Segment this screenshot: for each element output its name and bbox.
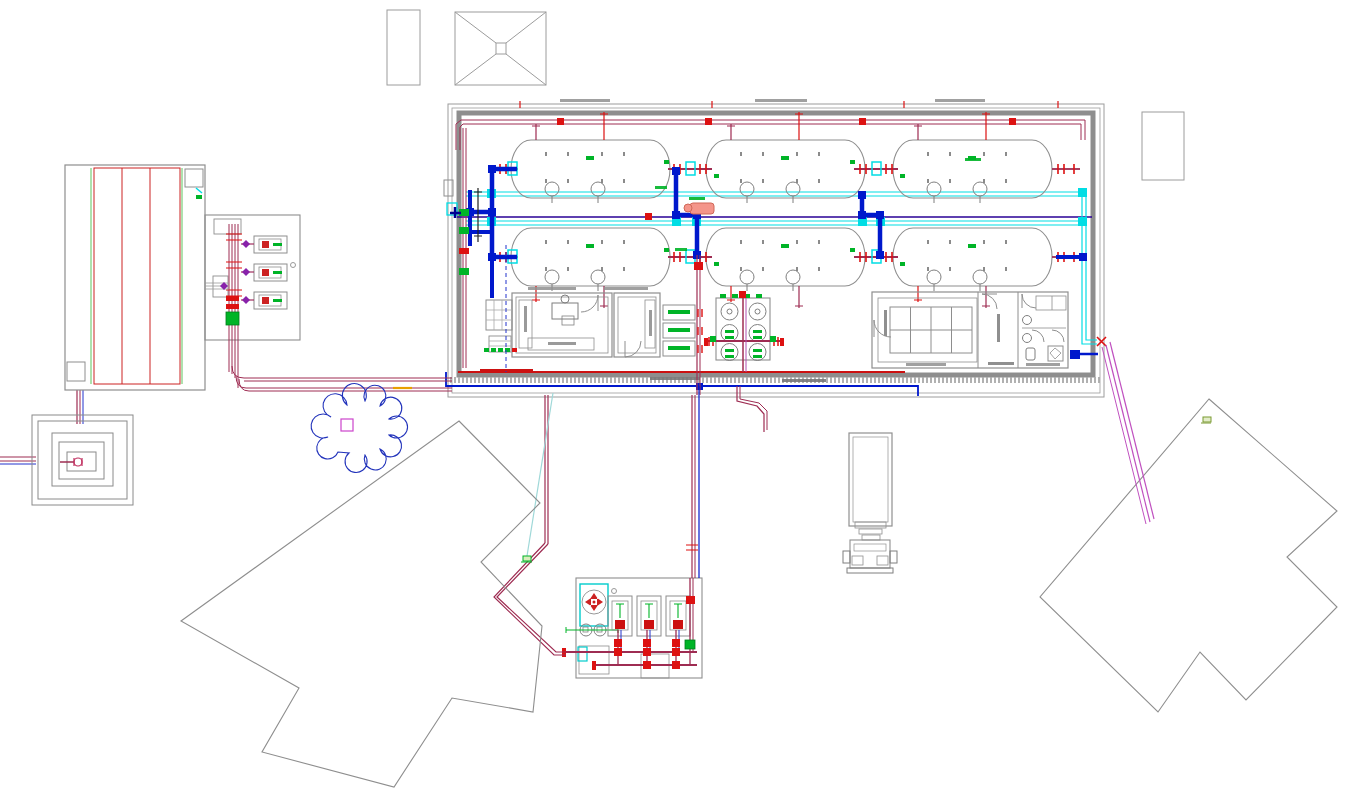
top-pipe-valve [859, 118, 866, 125]
tank-stub-red-down [914, 286, 922, 302]
blue-joint [876, 211, 884, 219]
shower-drain [1050, 348, 1061, 359]
survey-marker [523, 556, 531, 561]
skid-unit-green-label [273, 271, 282, 274]
tanker-trailer [849, 433, 892, 526]
blue-joint [858, 191, 866, 199]
micro-label [755, 99, 807, 102]
southwest-building [181, 421, 542, 787]
micro-label [560, 99, 610, 102]
micro-label [528, 287, 576, 290]
east-feeder-pipe [1102, 347, 1146, 524]
office-side-table [562, 316, 574, 325]
top-pipe-valve [705, 118, 712, 125]
skid-unit-red [262, 269, 269, 276]
micro-label [782, 379, 826, 382]
meter-room-outer [614, 293, 660, 357]
storage-tank [706, 140, 865, 198]
tank-stub-red-up [982, 112, 990, 140]
skid-green-bar [725, 330, 734, 333]
dispenser-green-axis [674, 604, 682, 618]
tank-ticks [928, 152, 1006, 183]
tank-head-green [850, 248, 855, 252]
tank-stub-crimson-down [795, 286, 803, 308]
dispenser-valve [643, 639, 651, 647]
east-exit-blue-joint [1070, 350, 1080, 359]
tanker-seat [852, 556, 863, 565]
shed-red-valve [686, 596, 695, 604]
odorizer-green-label [668, 310, 690, 314]
tankfarm-corner-room [185, 169, 203, 187]
skid-green-bar [725, 336, 734, 339]
manifold-valve [643, 648, 651, 656]
tank-green-label [586, 156, 594, 160]
tank-stub-red-up [600, 112, 608, 140]
tanker-bumper [847, 568, 893, 573]
manifold-cap [592, 661, 596, 670]
dispenser-red-block [615, 620, 625, 629]
fitting-green-dot [484, 348, 489, 352]
canopy-hip-lines [455, 12, 546, 85]
east-feeder-pipe [1106, 345, 1150, 522]
tanker-cab-window [854, 544, 886, 551]
tank-stub-crimson-up [532, 124, 540, 140]
transfer-pump [690, 203, 714, 214]
blue-joint [488, 253, 496, 261]
tank-stub-crimson-up [727, 124, 735, 140]
bath-store [1036, 296, 1066, 310]
tanker-trailer-inner [853, 437, 888, 522]
tank-ticks [928, 240, 1006, 271]
micro-label-green [965, 158, 981, 161]
cyan-tick [196, 188, 202, 193]
skid-green-bar [753, 349, 762, 352]
micro-label [906, 363, 946, 366]
northeast-shed [1142, 112, 1184, 180]
tank-ticks [741, 240, 819, 271]
skid-green-bar [753, 355, 762, 358]
tank-head-green [850, 160, 855, 164]
skid-unit-red [262, 241, 269, 248]
equipment-cabinet [486, 300, 512, 330]
manifold-skid-box [214, 219, 241, 234]
tank-ticks [546, 240, 624, 271]
east-feeder-pipe [1110, 342, 1154, 519]
green-valve [459, 227, 469, 234]
skid-cap [780, 338, 784, 346]
tank-head-green [900, 262, 905, 266]
micro-label [935, 99, 985, 102]
tankfarm-bays [94, 168, 180, 384]
generator-grid-lines [890, 307, 972, 353]
generator-door [874, 320, 891, 337]
micro-label [1026, 363, 1060, 366]
cyan-fitting [1078, 188, 1087, 197]
skid-cap [704, 338, 708, 346]
shed-green-valve [685, 640, 695, 649]
tanker-seat [877, 556, 888, 565]
unit-valve [242, 296, 250, 304]
red-valve [645, 213, 652, 220]
skid-red-top [739, 291, 746, 298]
dispenser-valve [672, 639, 680, 647]
blue-joint [858, 211, 866, 219]
survey-marker [1203, 417, 1211, 422]
tank-green-label [781, 244, 789, 248]
cyan-fitting [1078, 217, 1087, 226]
skid-unit-green-label [273, 299, 282, 302]
tank-stub-crimson-up [914, 124, 922, 140]
bath-sink [1023, 334, 1032, 343]
tankfarm-building [65, 165, 205, 390]
tank-green-label [586, 244, 594, 248]
storage-tank [893, 228, 1052, 286]
canopy-apex [496, 43, 506, 54]
micro-label-v [524, 306, 527, 332]
equipment-cabinet2-lines [489, 341, 511, 346]
micro-label-green [655, 186, 667, 189]
manifold-valve [672, 661, 680, 669]
tanker-chassis [859, 529, 882, 534]
cad-drawing-viewport[interactable] [0, 0, 1356, 811]
micro-label [650, 377, 700, 380]
stall-door [1032, 330, 1044, 342]
green-valve [459, 268, 469, 275]
skid-green-dot [732, 294, 738, 298]
skid-green-dot [756, 294, 762, 298]
tanker-chassis [855, 522, 886, 528]
top-pipe-valve [557, 118, 564, 125]
manifold-red-tees [226, 262, 242, 268]
tankfarm-corner-room [67, 362, 85, 381]
dispenser-green-axis [645, 604, 653, 618]
meter-room-door [625, 341, 641, 357]
compressor-fan-hub [593, 601, 596, 604]
micro-label-green [689, 197, 705, 200]
tank-head-green [900, 174, 905, 178]
skid-dot [291, 263, 296, 268]
blue-joint [876, 251, 884, 259]
manifold-valve [643, 661, 651, 669]
stall-door [1052, 330, 1064, 342]
micro-label-v [997, 314, 1000, 342]
shed-dot [612, 589, 617, 594]
equipment-cabinet-grid [486, 300, 512, 330]
tanker-wheel [843, 551, 850, 563]
tank-head-green [664, 160, 669, 164]
red-valve [459, 248, 469, 254]
skid-unit-green-label [273, 243, 282, 246]
dispenser-red-block [673, 620, 683, 629]
bath-sink [1023, 316, 1032, 325]
control-room-door [982, 294, 997, 309]
blue-joint [672, 167, 680, 175]
fitting-green-dot [498, 348, 503, 352]
storage-tank [511, 228, 670, 286]
dispenser-red-block [644, 620, 654, 629]
pale-cyan-line [527, 393, 553, 556]
skid-green-bar [753, 336, 762, 339]
tank-stub-crimson-down [982, 286, 990, 308]
skid-green-bar [753, 330, 762, 333]
tank-ticks [741, 152, 819, 183]
blue-joint [672, 211, 680, 219]
storage-tank [511, 140, 670, 198]
north-shed [387, 10, 420, 85]
skid-unit-red [262, 297, 269, 304]
tank-head-green [714, 262, 719, 266]
pit-valve-wheel [74, 458, 82, 466]
tank-stub-red-up [795, 112, 803, 140]
skid-green-side [770, 336, 776, 342]
tank-green-label [968, 244, 976, 248]
top-pipe-valve [1009, 118, 1016, 125]
office-door [581, 295, 598, 312]
top-crimson-pipe-a [460, 124, 1081, 150]
cloud-marker [341, 419, 353, 431]
dispenser-green-axis [616, 604, 624, 618]
east-exit-valve [1097, 337, 1106, 346]
manifold-red-block [226, 304, 239, 309]
micro-label-green [675, 248, 687, 251]
unit-valve [242, 240, 250, 248]
east-building [1040, 399, 1337, 712]
manifold-red-block [226, 296, 239, 301]
tank-manholes [740, 270, 800, 291]
office-chair [561, 295, 569, 303]
transfer-pump-head [684, 204, 692, 212]
tanker-wheel [890, 551, 897, 563]
green-dot [196, 195, 202, 199]
skid-green-dot [720, 294, 726, 298]
fitting-red-dot [512, 348, 517, 352]
blue-manifold-west-leg [470, 190, 492, 298]
skid-green-side [710, 336, 716, 342]
micro-label [988, 362, 1014, 365]
tank-green-label [781, 156, 789, 160]
manifold-green-valve [226, 312, 239, 325]
micro-label [548, 342, 576, 345]
fitting-green-dot [491, 348, 496, 352]
tank-head-green [714, 174, 719, 178]
bath-door [1022, 294, 1036, 308]
tank-head-green [664, 248, 669, 252]
tank-manholes [927, 270, 987, 291]
drawing-canvas [0, 0, 1356, 811]
blue-joint [1079, 253, 1087, 261]
micro-label [604, 287, 648, 290]
micro-label-v [649, 310, 652, 336]
micro-label-v [884, 310, 887, 336]
red-valve [694, 262, 703, 270]
skid-green-bar [725, 349, 734, 352]
manifold-valve [614, 648, 622, 656]
toilet [1026, 348, 1035, 360]
tanker-hitch [862, 535, 880, 540]
odorizer-green-label [668, 346, 690, 350]
unit-valve [242, 268, 250, 276]
dispenser-valve [614, 639, 622, 647]
tree-cloud [311, 384, 407, 473]
blue-joint [488, 208, 496, 216]
odorizer-green-label [668, 328, 690, 332]
blue-joint [488, 165, 496, 173]
skid-green-bar [725, 355, 734, 358]
storage-tank [893, 140, 1052, 198]
tank-ticks [546, 152, 624, 183]
manifold-valve [672, 648, 680, 656]
manifold-red-tees [226, 234, 242, 240]
storage-tank [706, 228, 865, 286]
